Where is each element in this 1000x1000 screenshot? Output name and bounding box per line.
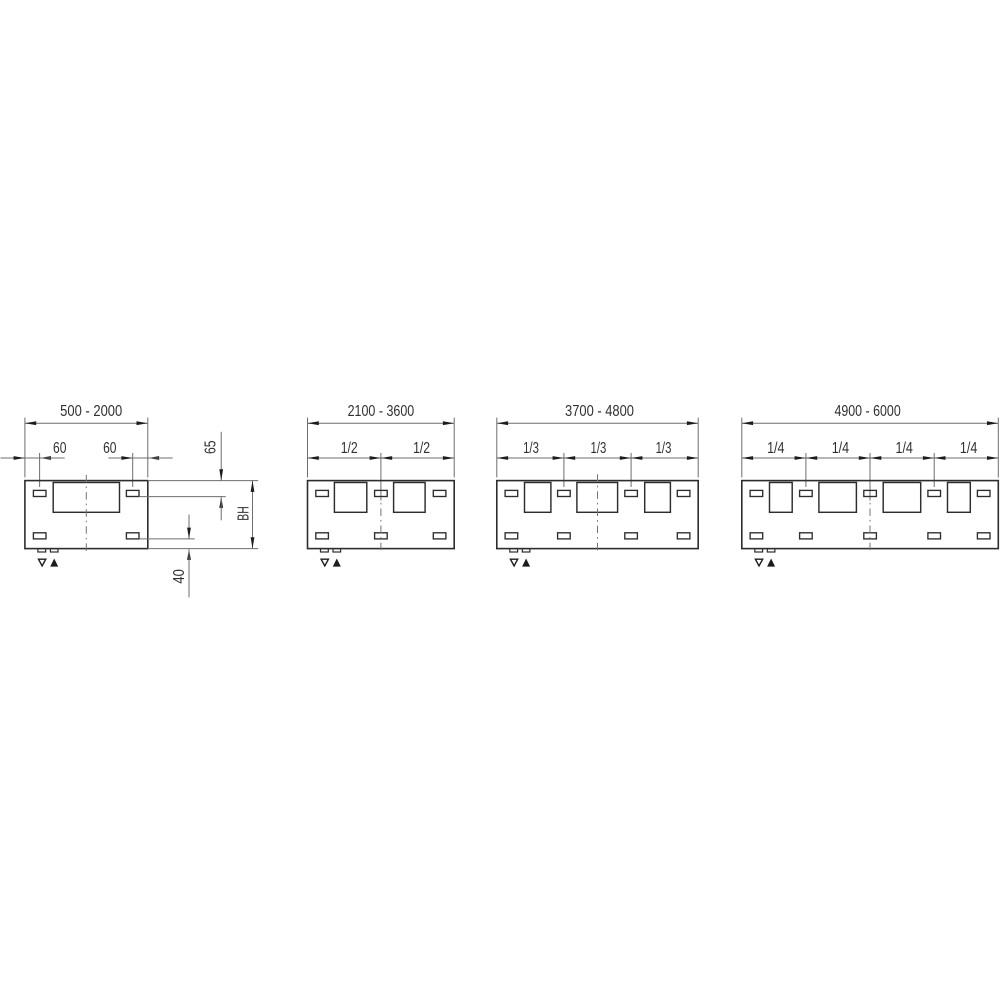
svg-text:60: 60	[103, 440, 116, 457]
svg-text:500 - 2000: 500 - 2000	[60, 403, 122, 420]
svg-text:1/3: 1/3	[591, 440, 607, 457]
svg-text:1/4: 1/4	[832, 440, 849, 457]
svg-text:1/4: 1/4	[767, 440, 784, 457]
svg-text:1/4: 1/4	[960, 440, 977, 457]
svg-text:65: 65	[203, 440, 220, 454]
svg-text:60: 60	[53, 440, 66, 457]
svg-text:1/2: 1/2	[413, 440, 430, 457]
svg-text:1/3: 1/3	[523, 440, 539, 457]
svg-text:2100 - 3600: 2100 - 3600	[348, 403, 415, 420]
svg-text:BH: BH	[235, 506, 252, 520]
svg-text:1/4: 1/4	[896, 440, 913, 457]
svg-text:3700 - 4800: 3700 - 4800	[565, 403, 634, 420]
svg-text:40: 40	[171, 569, 188, 583]
svg-text:1/2: 1/2	[341, 440, 358, 457]
svg-text:1/3: 1/3	[656, 440, 672, 457]
svg-text:4900 - 6000: 4900 - 6000	[834, 403, 900, 420]
